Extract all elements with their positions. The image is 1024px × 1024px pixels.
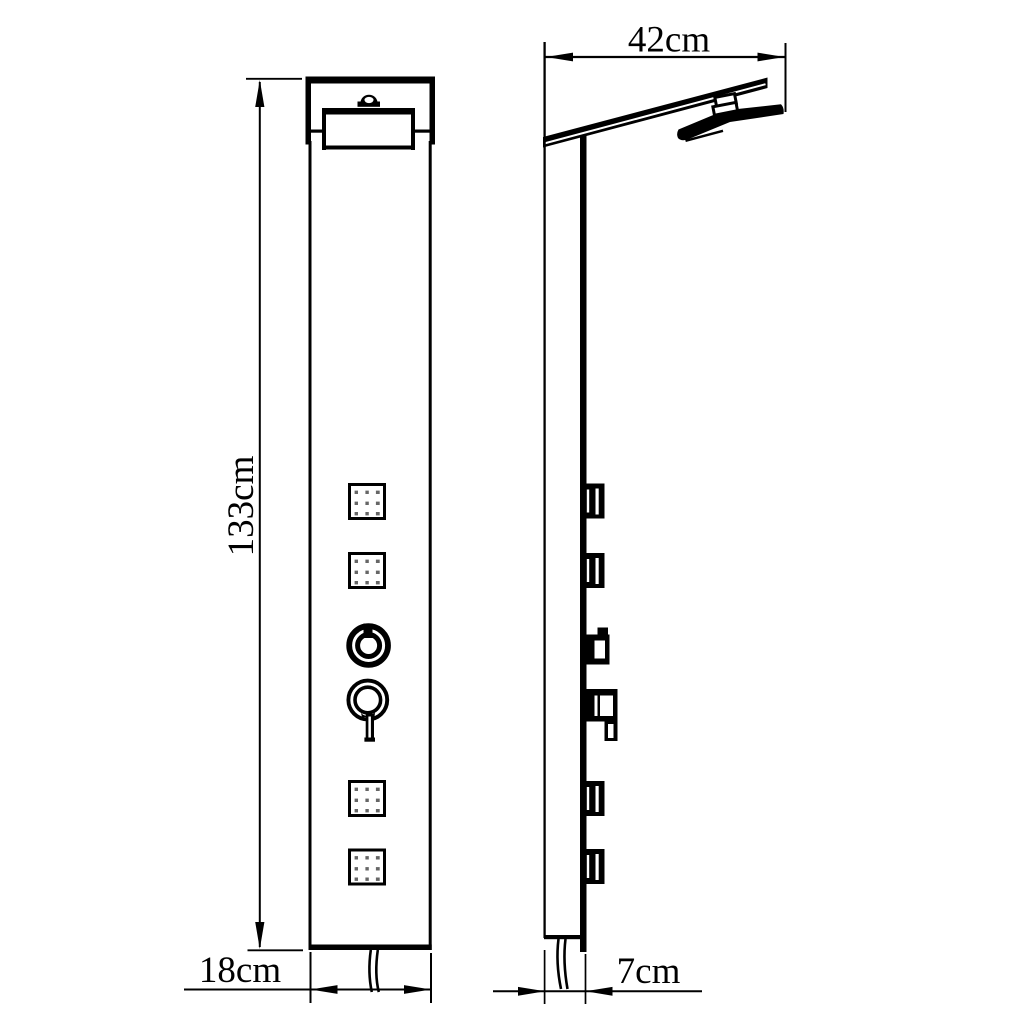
- svg-text:42cm: 42cm: [628, 20, 710, 61]
- svg-text:18cm: 18cm: [199, 950, 281, 991]
- svg-text:133cm: 133cm: [221, 455, 262, 556]
- svg-text:7cm: 7cm: [617, 951, 681, 992]
